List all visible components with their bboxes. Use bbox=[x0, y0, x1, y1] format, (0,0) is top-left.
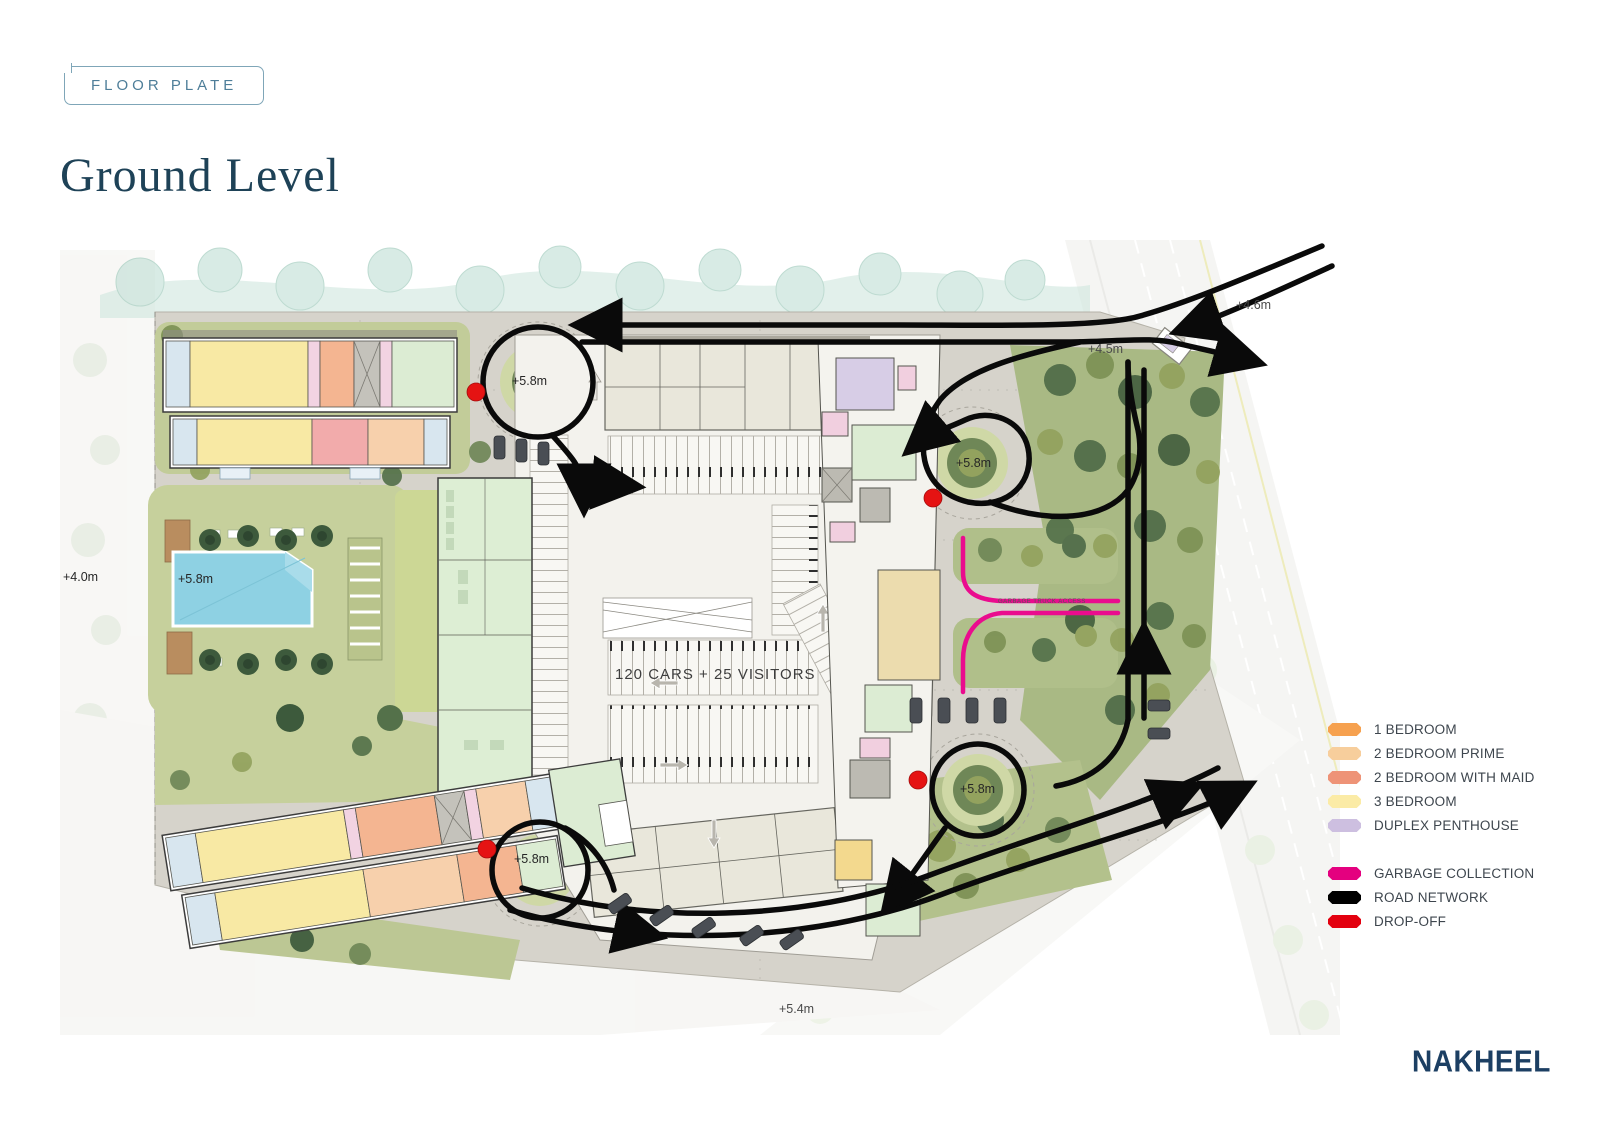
label-parking-count: 120 CARS + 25 VISITORS bbox=[615, 666, 816, 683]
legend-item-3-bedroom: 3 BEDROOM bbox=[1328, 794, 1535, 809]
legend-routes-group: GARBAGE COLLECTION ROAD NETWORK DROP-OFF bbox=[1328, 866, 1535, 929]
legend-label: GARBAGE COLLECTION bbox=[1374, 866, 1534, 881]
legend-item-duplex-penthouse: DUPLEX PENTHOUSE bbox=[1328, 818, 1535, 833]
right-wing bbox=[818, 340, 940, 936]
legend-label: ROAD NETWORK bbox=[1374, 890, 1488, 905]
swatch-road-network bbox=[1328, 891, 1361, 904]
legend-item-drop-off: DROP-OFF bbox=[1328, 914, 1535, 929]
swatch-3-bedroom bbox=[1328, 795, 1361, 808]
swatch-1-bedroom bbox=[1328, 723, 1361, 736]
legend-label: 2 BEDROOM WITH MAID bbox=[1374, 770, 1535, 785]
label-roundabout-sw: +5.8m bbox=[514, 852, 549, 866]
north-hedge bbox=[100, 246, 1090, 318]
floor-plate-page: FLOOR PLATE Ground Level bbox=[0, 0, 1600, 1131]
legend-item-2-bedroom-prime: 2 BEDROOM PRIME bbox=[1328, 746, 1535, 761]
swatch-duplex-penthouse bbox=[1328, 819, 1361, 832]
northwest-buildings bbox=[163, 330, 457, 479]
site-plan-svg bbox=[60, 240, 1340, 1035]
swatch-2-bedroom-prime bbox=[1328, 747, 1361, 760]
legend-label: DROP-OFF bbox=[1374, 914, 1446, 929]
swatch-garbage-collection bbox=[1328, 867, 1361, 880]
legend-label: DUPLEX PENTHOUSE bbox=[1374, 818, 1519, 833]
swatch-drop-off bbox=[1328, 915, 1361, 928]
legend-item-2-bedroom-maid: 2 BEDROOM WITH MAID bbox=[1328, 770, 1535, 785]
legend-label: 1 BEDROOM bbox=[1374, 722, 1457, 737]
label-roundabout-se: +5.8m bbox=[960, 782, 995, 796]
label-elevation-junction: +4.5m bbox=[1088, 342, 1123, 356]
legend: 1 BEDROOM 2 BEDROOM PRIME 2 BEDROOM WITH… bbox=[1328, 722, 1535, 938]
swatch-2-bedroom-maid bbox=[1328, 771, 1361, 784]
legend-item-road-network: ROAD NETWORK bbox=[1328, 890, 1535, 905]
nakheel-logo: NAKHEEL bbox=[1412, 1045, 1551, 1080]
legend-label: 3 BEDROOM bbox=[1374, 794, 1457, 809]
floor-plate-badge: FLOOR PLATE bbox=[64, 66, 264, 105]
site-plan: +4.0m +5.8m +5.8m +5.8m +5.8m +5.8m +4.6… bbox=[60, 240, 1340, 1035]
label-elevation-west: +4.0m bbox=[63, 570, 98, 584]
label-roundabout-mid: +5.8m bbox=[956, 456, 991, 470]
legend-item-1-bedroom: 1 BEDROOM bbox=[1328, 722, 1535, 737]
legend-units-group: 1 BEDROOM 2 BEDROOM PRIME 2 BEDROOM WITH… bbox=[1328, 722, 1535, 833]
label-elevation-highway: +4.6m bbox=[1236, 298, 1271, 312]
label-garbage-access: GARBAGE TRUCK ACCESS bbox=[998, 599, 1086, 605]
label-elevation-south: +5.4m bbox=[779, 1002, 814, 1016]
label-roundabout-nw: +5.8m bbox=[512, 374, 547, 388]
label-pool-level: +5.8m bbox=[178, 572, 213, 586]
legend-item-garbage-collection: GARBAGE COLLECTION bbox=[1328, 866, 1535, 881]
amenity-building bbox=[438, 478, 532, 792]
legend-label: 2 BEDROOM PRIME bbox=[1374, 746, 1505, 761]
page-title: Ground Level bbox=[60, 148, 340, 203]
